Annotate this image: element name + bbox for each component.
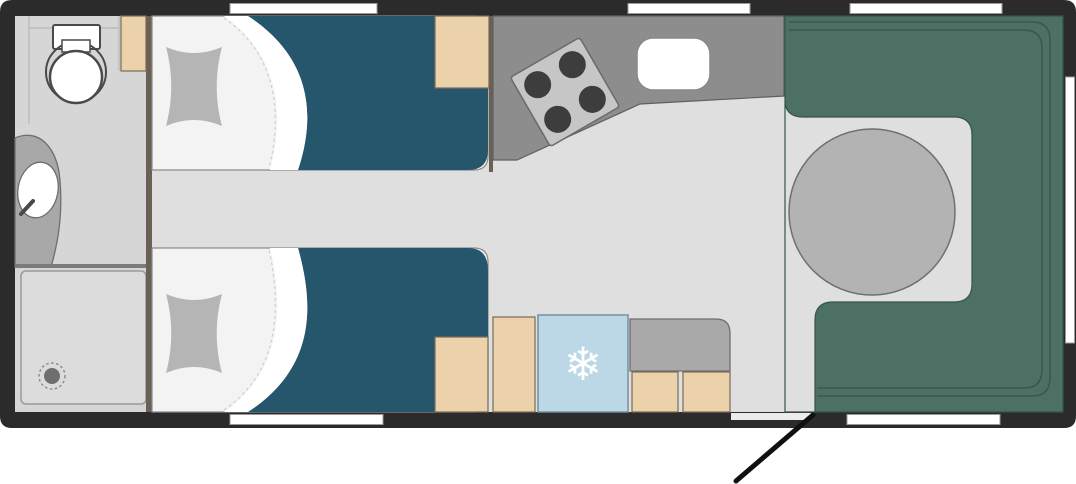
kitchen-sink <box>637 38 710 90</box>
shower-drain <box>44 368 60 384</box>
window-right-lounge <box>1066 77 1075 343</box>
bed-top-pillow <box>166 47 222 126</box>
shower-tray <box>21 271 146 404</box>
entry-threshold <box>731 413 811 420</box>
wardrobe-counter <box>630 319 730 371</box>
floorplan-svg: ❄ <box>0 0 1076 484</box>
window-top-bedroom <box>230 4 377 14</box>
cabinet-bed-bottom-foot <box>435 337 488 412</box>
lounge-table <box>789 129 955 295</box>
bathroom-divider <box>15 264 148 268</box>
kitchen-cabinet-tall <box>493 317 535 412</box>
window-bottom-bedroom <box>230 415 383 425</box>
cabinet-bathroom <box>121 16 146 71</box>
window-top-lounge <box>850 4 1002 14</box>
window-top-kitchen <box>628 4 750 14</box>
under-counter-cabinet-1 <box>632 372 678 412</box>
floorplan-canvas: ❄ <box>0 0 1076 484</box>
bed-bottom-pillow <box>166 294 222 373</box>
partition-bathroom <box>146 16 152 412</box>
snowflake-icon: ❄ <box>564 337 603 391</box>
toilet-bowl <box>50 51 102 103</box>
cabinet-bed-top-head <box>435 16 489 88</box>
under-counter-cabinet-2 <box>683 372 730 412</box>
window-bottom-lounge <box>847 415 1000 425</box>
